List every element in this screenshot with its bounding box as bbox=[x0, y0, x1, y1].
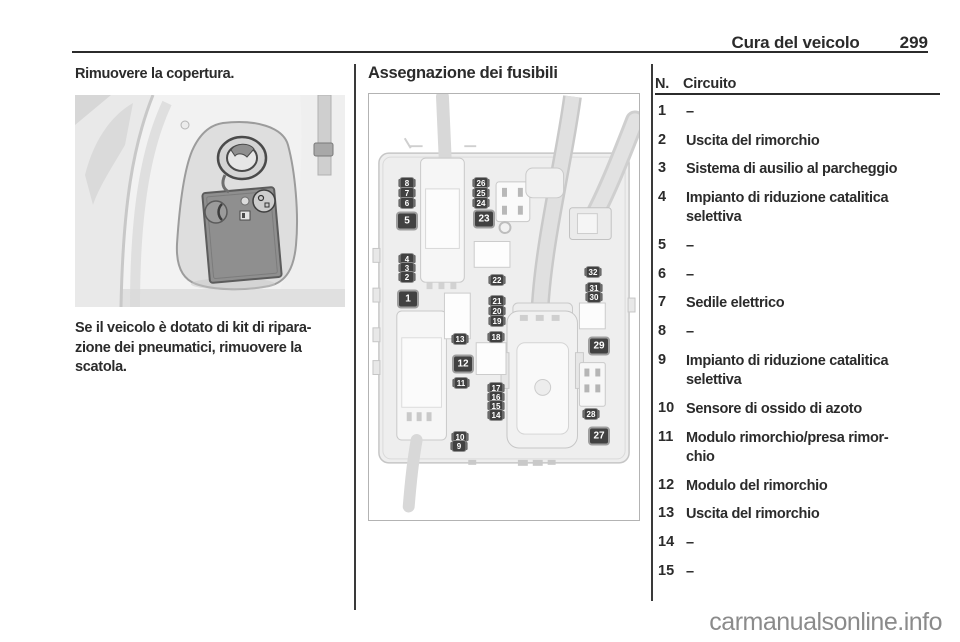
circuit-number: 3 bbox=[658, 160, 666, 176]
fuse-label-25: 25 bbox=[475, 188, 488, 198]
paragraph-line: scatola. bbox=[75, 358, 311, 378]
circuit-number: 8 bbox=[658, 323, 666, 339]
circuit-number: 12 bbox=[658, 477, 674, 493]
circuit-table-header: N. Circuito bbox=[655, 76, 669, 92]
fuse-label-32: 32 bbox=[587, 267, 600, 277]
fuse-label-layer: 8765432126252423222120191318121117161514… bbox=[369, 94, 639, 520]
circuit-label: – bbox=[686, 237, 694, 256]
page-header: Cura del veicolo 299 bbox=[732, 33, 929, 53]
fuse-box-figure: 8765432126252423222120191318121117161514… bbox=[368, 93, 640, 521]
circuit-label: – bbox=[686, 323, 694, 342]
paragraph-line: Se il veicolo è dotato di kit di ripara- bbox=[75, 319, 311, 339]
circuit-label: – bbox=[686, 266, 694, 285]
circuit-label: Sedile elettrico bbox=[686, 294, 784, 313]
fuse-label-28: 28 bbox=[585, 409, 598, 419]
cover-removal-illustration bbox=[75, 95, 345, 307]
circuit-label: Impianto di riduzione cataliticaselettiv… bbox=[686, 352, 888, 391]
circuit-number: 7 bbox=[658, 294, 666, 310]
left-intro-text: Rimuovere la copertura. bbox=[75, 66, 234, 82]
circuit-number: 4 bbox=[658, 189, 666, 205]
fuse-label-6: 6 bbox=[401, 198, 414, 208]
circuit-label: Sistema di ausilio al parcheggio bbox=[686, 160, 897, 179]
circuit-label: Impianto di riduzione cataliticaselettiv… bbox=[686, 189, 888, 228]
fuse-label-22: 22 bbox=[491, 275, 504, 285]
circuit-number: 10 bbox=[658, 400, 674, 416]
fuse-label-29: 29 bbox=[588, 337, 610, 356]
fuse-label-26: 26 bbox=[475, 178, 488, 188]
fuse-label-12: 12 bbox=[452, 355, 474, 374]
circuit-number: 11 bbox=[658, 429, 673, 445]
fuse-label-13: 13 bbox=[454, 334, 467, 344]
manual-page: Cura del veicolo 299 Rimuovere la copert… bbox=[0, 0, 960, 642]
col-circuit-header: Circuito bbox=[683, 76, 736, 92]
left-paragraph: Se il veicolo è dotato di kit di ripara-… bbox=[75, 319, 311, 378]
circuit-number: 13 bbox=[658, 505, 674, 521]
fuse-label-11: 11 bbox=[455, 378, 468, 388]
section-title: Cura del veicolo bbox=[732, 33, 860, 53]
circuit-table-rule bbox=[655, 93, 940, 95]
watermark-link[interactable]: carmanualsonline.info bbox=[709, 608, 942, 637]
column-divider-right bbox=[651, 64, 653, 601]
fuse-label-14: 14 bbox=[490, 410, 503, 420]
circuit-number: 9 bbox=[658, 352, 666, 368]
circuit-label: Uscita del rimorchio bbox=[686, 505, 819, 524]
fuse-label-7: 7 bbox=[401, 188, 414, 198]
fuse-label-23: 23 bbox=[473, 210, 495, 229]
fuse-label-30: 30 bbox=[588, 292, 601, 302]
column-divider-left bbox=[354, 64, 356, 610]
circuit-label: – bbox=[686, 534, 694, 553]
fuse-label-1: 1 bbox=[397, 290, 419, 309]
circuit-number: 15 bbox=[658, 563, 674, 579]
fuse-label-24: 24 bbox=[475, 198, 488, 208]
fuse-label-19: 19 bbox=[491, 316, 504, 326]
circuit-label: – bbox=[686, 563, 694, 582]
cover-illustration-svg bbox=[75, 95, 345, 307]
circuit-label: – bbox=[686, 103, 694, 122]
fuse-label-5: 5 bbox=[396, 212, 418, 231]
col-number-header: N. bbox=[655, 76, 669, 92]
circuit-number: 1 bbox=[658, 103, 666, 119]
paragraph-line: zione dei pneumatici, rimuovere la bbox=[75, 339, 311, 359]
page-number: 299 bbox=[900, 33, 928, 53]
circuit-label: Sensore di ossido di azoto bbox=[686, 400, 862, 419]
header-rule bbox=[72, 51, 928, 53]
circuit-label: Modulo rimorchio/presa rimor-chio bbox=[686, 429, 888, 468]
fuse-label-8: 8 bbox=[401, 178, 414, 188]
fuse-label-2: 2 bbox=[401, 272, 414, 282]
circuit-label: Modulo del rimorchio bbox=[686, 477, 827, 496]
fuse-label-20: 20 bbox=[491, 306, 504, 316]
fuse-label-27: 27 bbox=[588, 427, 610, 446]
circuit-number: 14 bbox=[658, 534, 674, 550]
circuit-number: 5 bbox=[658, 237, 666, 253]
circuit-label: Uscita del rimorchio bbox=[686, 132, 819, 151]
fuse-label-9: 9 bbox=[453, 441, 466, 451]
fuse-assignment-heading: Assegnazione dei fusibili bbox=[368, 64, 558, 83]
fuse-label-18: 18 bbox=[490, 332, 503, 342]
circuit-number: 6 bbox=[658, 266, 666, 282]
fuse-label-21: 21 bbox=[491, 296, 504, 306]
circuit-number: 2 bbox=[658, 132, 666, 148]
